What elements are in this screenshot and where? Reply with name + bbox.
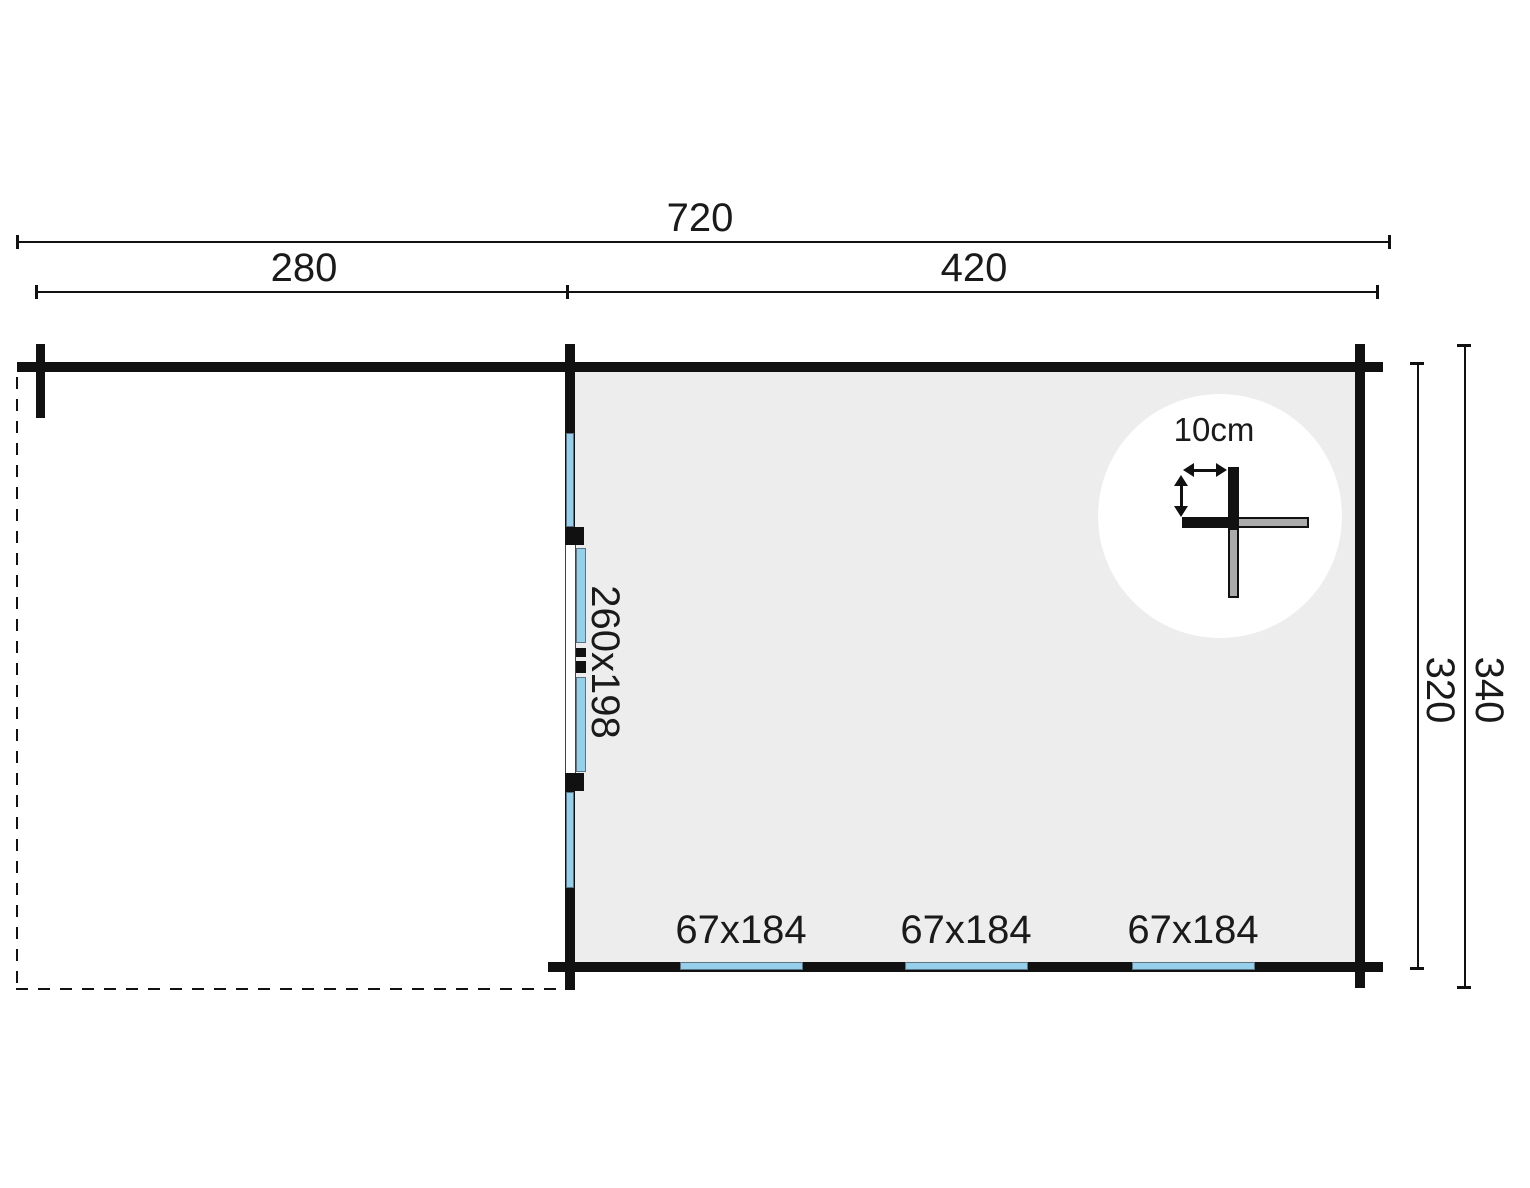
dim-tick [1457,986,1471,989]
dim-label-right-section: 420 [894,246,1054,290]
bottom-window-3 [1132,962,1255,970]
terrace-outline-left-dashed [16,377,18,990]
dim-line-outer-depth [1464,346,1466,988]
door-size-label: 260x198 [583,562,627,762]
door-opening [565,545,576,773]
terrace-corner-post [36,344,45,418]
window-size-label-1: 67x184 [661,908,821,952]
right-wall [1355,344,1365,988]
door-sidelight-top [566,433,574,527]
top-wall [17,362,1383,372]
dim-tick [566,285,569,299]
height-arrow-icon [1180,484,1183,508]
width-arrow-icon [1192,469,1218,472]
floor-plan: 720 280 420 260x198 67x184 67x184 67x184… [0,0,1530,1188]
door-frame-bottom [566,773,584,791]
dim-label-total-width: 720 [620,196,780,240]
terrace-outline-bottom-dashed [16,988,557,990]
wall-thickness-label: 10cm [1134,410,1294,450]
height-arrow-icon [1174,506,1188,517]
dim-tick [1388,235,1391,249]
dim-tick [1410,967,1424,970]
dim-label-left-section: 280 [224,246,384,290]
dim-label-outer-depth: 340 [1467,590,1511,790]
bottom-window-2 [905,962,1028,970]
dim-label-inner-depth: 320 [1418,590,1462,790]
height-arrow-icon [1174,475,1188,486]
window-size-label-3: 67x184 [1113,908,1273,952]
dim-line-sections [37,291,1378,293]
width-arrow-icon [1216,463,1227,477]
detail-wall-vertical-gray [1228,528,1239,598]
window-size-label-2: 67x184 [886,908,1046,952]
dim-tick [1376,285,1379,299]
dim-tick [1410,362,1424,365]
door-sidelight-bottom [566,792,574,888]
detail-wall-horizontal-gray [1237,517,1309,528]
bottom-window-1 [680,962,803,970]
detail-wall-horizontal-black [1182,517,1239,528]
dim-line-total-width [18,241,1390,243]
dim-tick [16,235,19,249]
door-frame-top [566,527,584,545]
dim-tick [1457,344,1471,347]
dim-tick [35,285,38,299]
